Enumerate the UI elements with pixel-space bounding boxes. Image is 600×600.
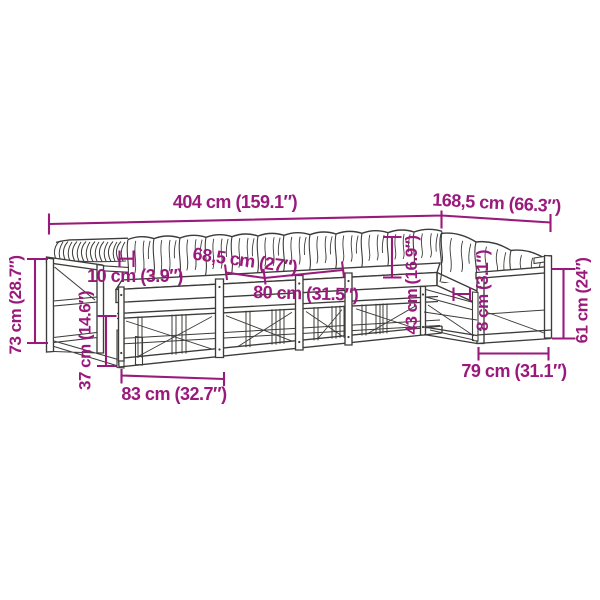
svg-text:80 cm (31.5″): 80 cm (31.5″)	[253, 282, 359, 305]
svg-text:73 cm (28.7″): 73 cm (28.7″)	[6, 256, 25, 355]
svg-text:37 cm (14.6″): 37 cm (14.6″)	[76, 291, 95, 390]
svg-text:404 cm (159.1″): 404 cm (159.1″)	[173, 192, 298, 212]
svg-text:61 cm (24″): 61 cm (24″)	[573, 258, 592, 344]
svg-text:79 cm (31.1″): 79 cm (31.1″)	[461, 361, 567, 381]
svg-text:83 cm (32.7″): 83 cm (32.7″)	[121, 384, 227, 404]
svg-text:10 cm (3.9″): 10 cm (3.9″)	[87, 266, 183, 286]
svg-text:8 cm (3.1″): 8 cm (3.1″)	[473, 250, 492, 331]
svg-text:43 cm (16.9″): 43 cm (16.9″)	[402, 236, 421, 335]
